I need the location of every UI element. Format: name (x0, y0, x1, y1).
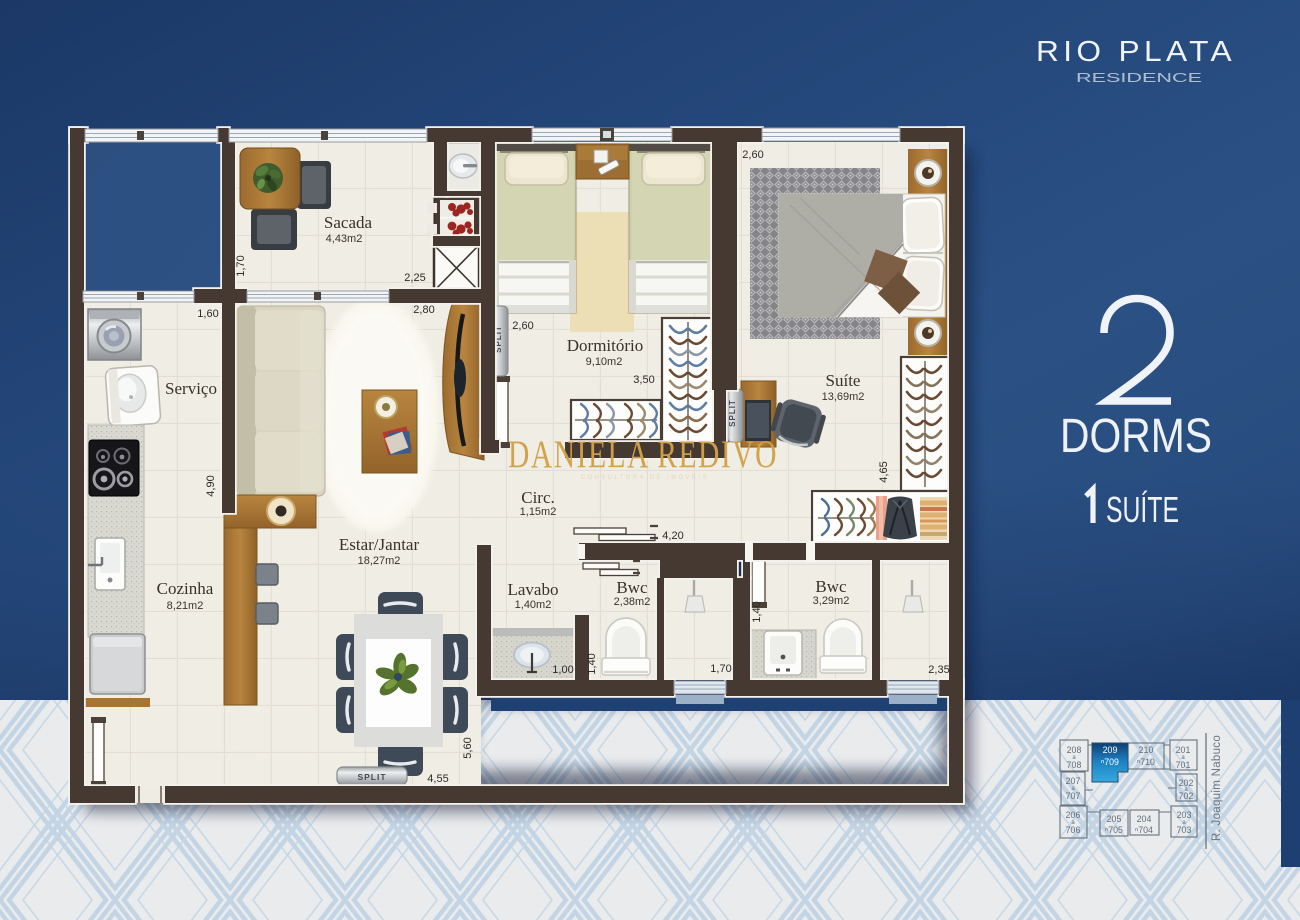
svg-text:701: 701 (1176, 760, 1191, 770)
svg-text:DORMS: DORMS (1060, 410, 1212, 463)
svg-text:5,60: 5,60 (462, 737, 474, 758)
svg-text:9,10m2: 9,10m2 (586, 356, 623, 368)
svg-text:208: 208 (1067, 745, 1082, 755)
svg-text:2,38m2: 2,38m2 (614, 596, 651, 608)
svg-text:Suíte: Suíte (826, 371, 861, 390)
svg-text:201: 201 (1176, 745, 1191, 755)
svg-text:R. Joaquim Nabuco: R. Joaquim Nabuco (1211, 735, 1223, 841)
svg-text:4,65: 4,65 (878, 461, 890, 482)
svg-text:1,40m2: 1,40m2 (515, 599, 552, 611)
svg-text:2,35: 2,35 (928, 664, 949, 676)
svg-text:703: 703 (1177, 825, 1192, 835)
svg-text:ⁿ705: ⁿ705 (1105, 825, 1123, 835)
svg-text:2,60: 2,60 (742, 149, 763, 161)
svg-text:Lavabo: Lavabo (508, 580, 559, 599)
svg-text:Cozinha: Cozinha (157, 579, 214, 598)
svg-text:Bwc: Bwc (815, 577, 847, 596)
svg-text:210: 210 (1139, 745, 1154, 755)
svg-text:207: 207 (1066, 776, 1081, 786)
svg-text:708: 708 (1067, 760, 1082, 770)
svg-text:RIO PLATA: RIO PLATA (1036, 36, 1236, 68)
svg-text:SUÍTE: SUÍTE (1106, 489, 1179, 530)
svg-text:RESIDENCE: RESIDENCE (1076, 71, 1202, 85)
svg-text:Serviço: Serviço (165, 379, 217, 398)
svg-text:Estar/Jantar: Estar/Jantar (339, 535, 420, 554)
svg-text:3,29m2: 3,29m2 (813, 595, 850, 607)
svg-text:206: 206 (1066, 810, 1081, 820)
svg-text:1,15m2: 1,15m2 (520, 506, 557, 518)
svg-text:CONSULTORA DE IMOVEIS: CONSULTORA DE IMOVEIS (581, 474, 709, 481)
svg-text:2,80: 2,80 (413, 304, 434, 316)
svg-text:1,60: 1,60 (197, 308, 218, 320)
svg-text:1,70: 1,70 (235, 255, 247, 276)
svg-text:1,40: 1,40 (586, 653, 598, 674)
svg-text:4,20: 4,20 (662, 530, 683, 542)
svg-text:ⁿ709: ⁿ709 (1101, 757, 1119, 767)
svg-text:ⁿ704: ⁿ704 (1135, 825, 1153, 835)
svg-text:204: 204 (1137, 814, 1152, 824)
svg-text:2,60: 2,60 (512, 320, 533, 332)
svg-text:209: 209 (1103, 745, 1118, 755)
svg-text:4,90: 4,90 (205, 475, 217, 496)
svg-text:ⁿ710: ⁿ710 (1137, 757, 1155, 767)
svg-text:205: 205 (1107, 814, 1122, 824)
svg-text:13,69m2: 13,69m2 (822, 391, 865, 403)
svg-text:707: 707 (1066, 791, 1081, 801)
svg-text:DANIELA REDIVO: DANIELA REDIVO (508, 433, 778, 476)
svg-text:Circ.: Circ. (521, 488, 555, 507)
svg-text:3,50: 3,50 (633, 374, 654, 386)
svg-text:1,40: 1,40 (751, 601, 763, 622)
svg-text:706: 706 (1066, 825, 1081, 835)
svg-text:Bwc: Bwc (616, 578, 648, 597)
svg-text:1,70: 1,70 (710, 663, 731, 675)
svg-text:18,27m2: 18,27m2 (358, 555, 401, 567)
svg-text:8,21m2: 8,21m2 (167, 600, 204, 612)
svg-text:4,43m2: 4,43m2 (326, 233, 363, 245)
svg-text:Sacada: Sacada (324, 213, 373, 232)
svg-text:SPLIT: SPLIT (357, 772, 386, 782)
svg-text:1,00: 1,00 (552, 664, 573, 676)
svg-text:4,55: 4,55 (427, 773, 448, 785)
svg-text:2,25: 2,25 (404, 272, 425, 284)
svg-text:Dormitório: Dormitório (567, 336, 644, 355)
svg-text:203: 203 (1177, 810, 1192, 820)
svg-text:SPLIT: SPLIT (728, 399, 737, 427)
